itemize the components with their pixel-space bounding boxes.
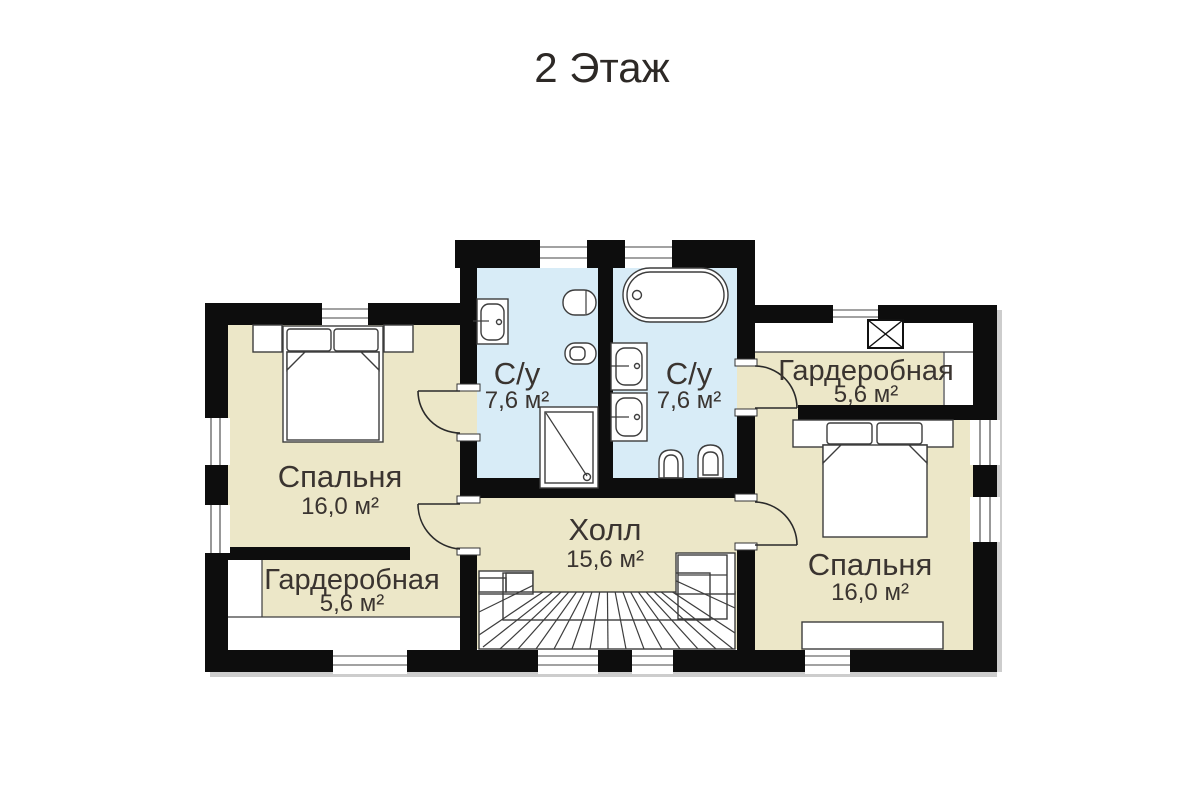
- bedroom-left-label: Спальня: [278, 459, 403, 494]
- door-gap-a: [460, 390, 477, 435]
- door-gap-b: [460, 502, 477, 549]
- vent-shaft-icon: [868, 320, 903, 348]
- pillow: [877, 423, 922, 444]
- floor-plan-page: 2 Этаж: [0, 0, 1200, 800]
- dresser: [802, 622, 943, 649]
- wardrobe-right-area: 5,6 м²: [834, 381, 899, 408]
- wall-left-outer: [205, 303, 228, 672]
- window: [333, 647, 407, 674]
- sink: [611, 393, 647, 441]
- nightstand: [384, 325, 413, 352]
- window: [625, 237, 672, 268]
- page-title: 2 Этаж: [534, 44, 669, 91]
- wardrobe-left-area: 5,6 м²: [320, 590, 385, 617]
- bathroom-left-label: С/у: [494, 356, 541, 391]
- pillow: [334, 329, 378, 351]
- toilet: [659, 450, 683, 478]
- wall-partition-left: [205, 547, 410, 560]
- bathtub: [623, 268, 728, 322]
- window: [540, 237, 587, 268]
- window: [322, 300, 368, 327]
- sink: [611, 343, 647, 390]
- hall-area: 15,6 м²: [566, 546, 644, 573]
- window: [970, 420, 1000, 465]
- pillow: [827, 423, 872, 444]
- window: [970, 497, 1000, 542]
- wall-center-right-2: [737, 410, 755, 500]
- bedroom-right-label: Спальня: [808, 547, 933, 582]
- bidet: [698, 445, 723, 478]
- toilet: [563, 290, 596, 315]
- window: [202, 418, 230, 465]
- bedroom-right-area: 16,0 м²: [831, 579, 909, 606]
- building-shadow-right: [997, 310, 1002, 672]
- bathroom-left-area: 7,6 м²: [485, 387, 550, 414]
- wall-center-right-3: [737, 545, 755, 652]
- headboard-console: [793, 420, 953, 447]
- wall-center-left-1: [460, 240, 477, 390]
- window: [538, 647, 598, 674]
- sink: [473, 299, 508, 344]
- window: [202, 505, 230, 553]
- window: [805, 647, 850, 674]
- wall-right-outer: [973, 305, 997, 672]
- window: [632, 647, 673, 674]
- bidet: [565, 343, 596, 364]
- wardrobe-right-shelf-floor: [752, 323, 973, 352]
- wall-bottom: [205, 650, 997, 672]
- wall-center-left-3: [460, 549, 477, 652]
- wall-center-top: [455, 240, 740, 268]
- wall-bathrooms-bottom: [460, 478, 752, 498]
- shower-cabin: [540, 407, 598, 488]
- pillow: [287, 329, 331, 351]
- bathroom-right-area: 7,6 м²: [657, 387, 722, 414]
- building-shadow-bottom: [210, 672, 997, 677]
- floor-plan-drawing: 2 Этаж: [0, 0, 1200, 800]
- bathroom-right-label: С/у: [666, 356, 713, 391]
- hall-label: Холл: [568, 512, 641, 547]
- bedroom-left-area: 16,0 м²: [301, 493, 379, 520]
- wall-center-right-1: [737, 240, 755, 365]
- nightstand: [253, 325, 282, 352]
